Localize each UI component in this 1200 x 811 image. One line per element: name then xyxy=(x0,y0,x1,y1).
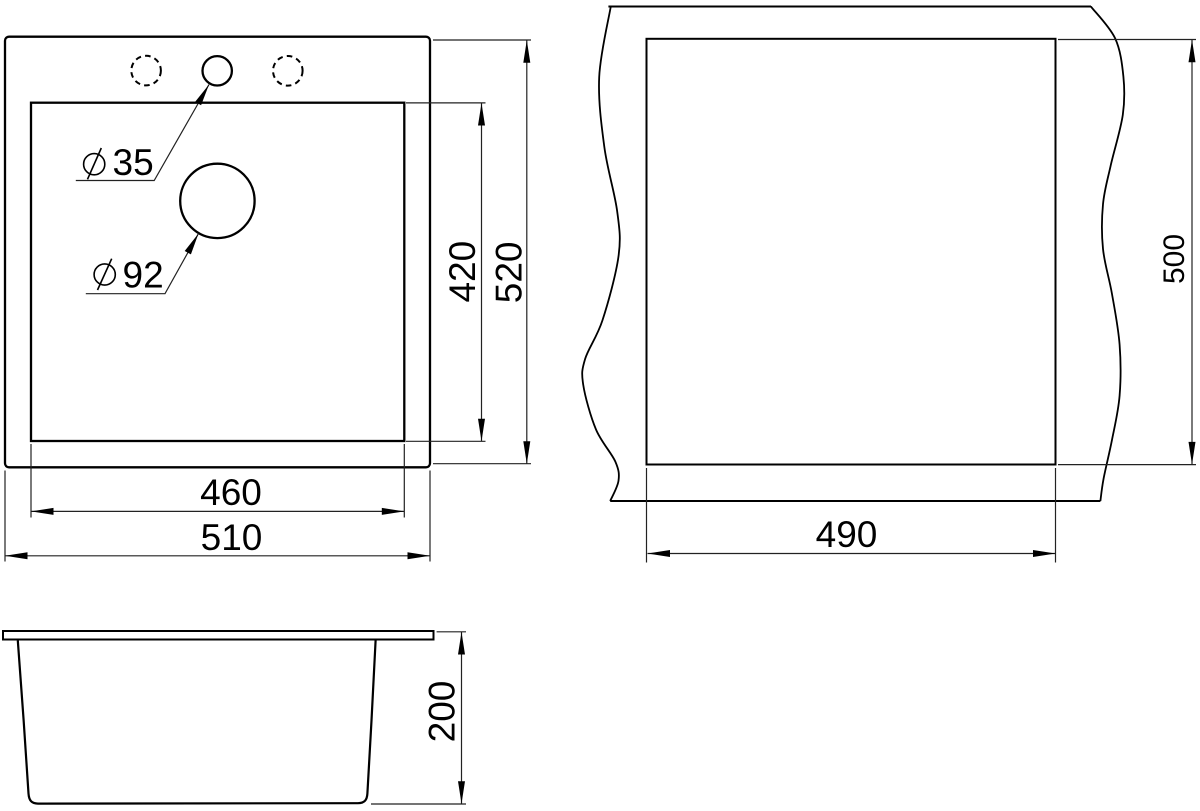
svg-text:35: 35 xyxy=(113,142,154,183)
svg-text:460: 460 xyxy=(200,472,262,513)
svg-text:92: 92 xyxy=(123,255,164,296)
svg-text:490: 490 xyxy=(816,514,878,555)
svg-text:520: 520 xyxy=(489,242,530,304)
svg-text:510: 510 xyxy=(201,517,263,558)
svg-text:200: 200 xyxy=(422,681,463,743)
svg-text:420: 420 xyxy=(442,241,483,303)
svg-text:500: 500 xyxy=(1158,234,1191,284)
